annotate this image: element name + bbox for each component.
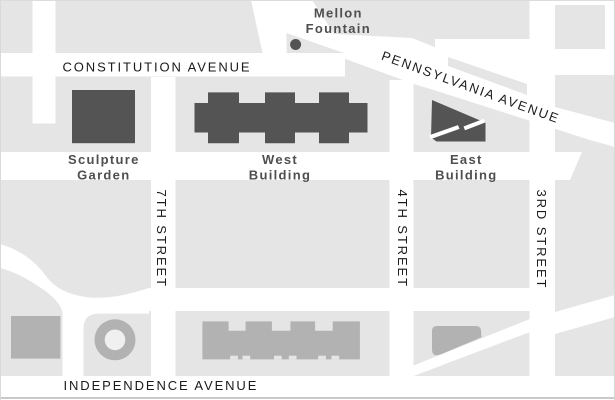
svg-text:4TH STREET: 4TH STREET — [395, 190, 410, 288]
svg-text:CONSTITUTION AVENUE: CONSTITUTION AVENUE — [63, 59, 252, 74]
svg-text:Garden: Garden — [77, 168, 130, 183]
svg-text:West: West — [262, 152, 298, 167]
svg-text:INDEPENDENCE AVENUE: INDEPENDENCE AVENUE — [64, 378, 259, 393]
svg-text:7TH STREET: 7TH STREET — [154, 190, 169, 288]
svg-text:3RD STREET: 3RD STREET — [534, 190, 549, 290]
svg-text:Mellon: Mellon — [314, 5, 363, 20]
svg-text:Building: Building — [249, 168, 311, 183]
svg-text:Sculpture: Sculpture — [68, 152, 140, 167]
svg-text:East: East — [450, 152, 483, 167]
svg-text:Fountain: Fountain — [306, 21, 371, 36]
svg-text:Building: Building — [435, 168, 497, 183]
